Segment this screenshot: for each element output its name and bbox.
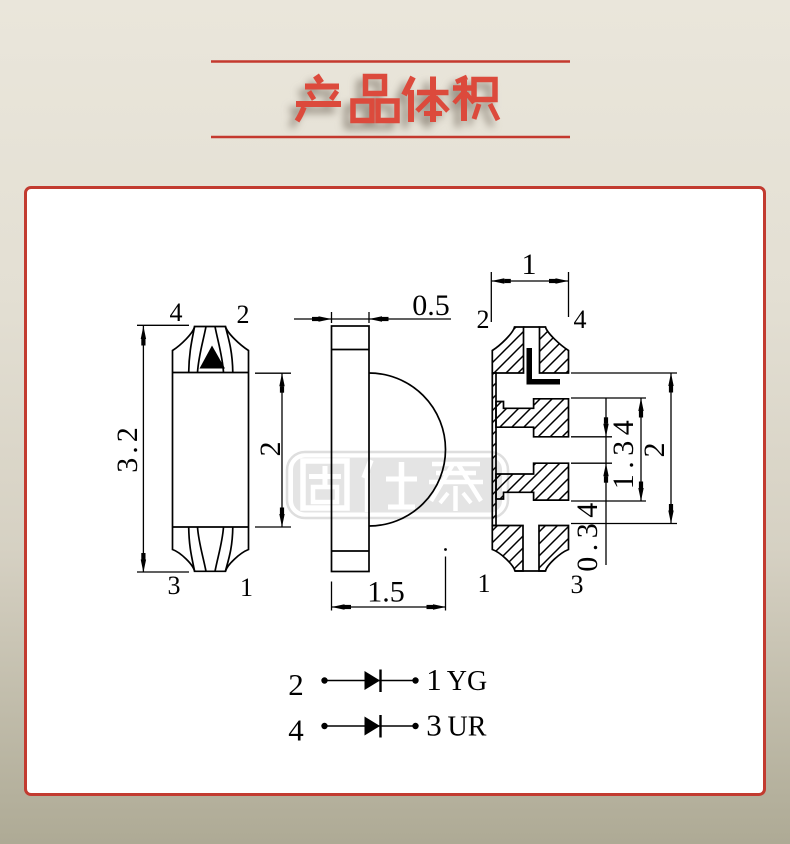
svg-text:4: 4 bbox=[574, 305, 587, 334]
svg-text:4: 4 bbox=[170, 298, 183, 327]
svg-text:1: 1 bbox=[426, 662, 442, 697]
svg-text:3.2: 3.2 bbox=[111, 423, 144, 473]
svg-text:1: 1 bbox=[522, 248, 537, 281]
svg-text:1: 1 bbox=[478, 569, 491, 598]
svg-text:3: 3 bbox=[426, 708, 442, 743]
svg-text:1.34: 1.34 bbox=[607, 415, 640, 490]
svg-text:3: 3 bbox=[571, 570, 584, 599]
svg-text:1: 1 bbox=[240, 573, 253, 602]
svg-text:2: 2 bbox=[288, 667, 304, 702]
svg-text:2: 2 bbox=[477, 305, 490, 334]
svg-text:3: 3 bbox=[168, 571, 181, 600]
svg-text:0.34: 0.34 bbox=[571, 497, 604, 572]
svg-text:1.5: 1.5 bbox=[367, 576, 405, 609]
svg-text:4: 4 bbox=[288, 713, 304, 748]
svg-text:UR: UR bbox=[448, 712, 487, 743]
svg-text:YG: YG bbox=[447, 666, 487, 697]
svg-text:0.5: 0.5 bbox=[412, 289, 450, 322]
svg-text:2: 2 bbox=[638, 443, 671, 458]
svg-text:2: 2 bbox=[254, 442, 287, 457]
svg-text:2: 2 bbox=[237, 300, 250, 329]
